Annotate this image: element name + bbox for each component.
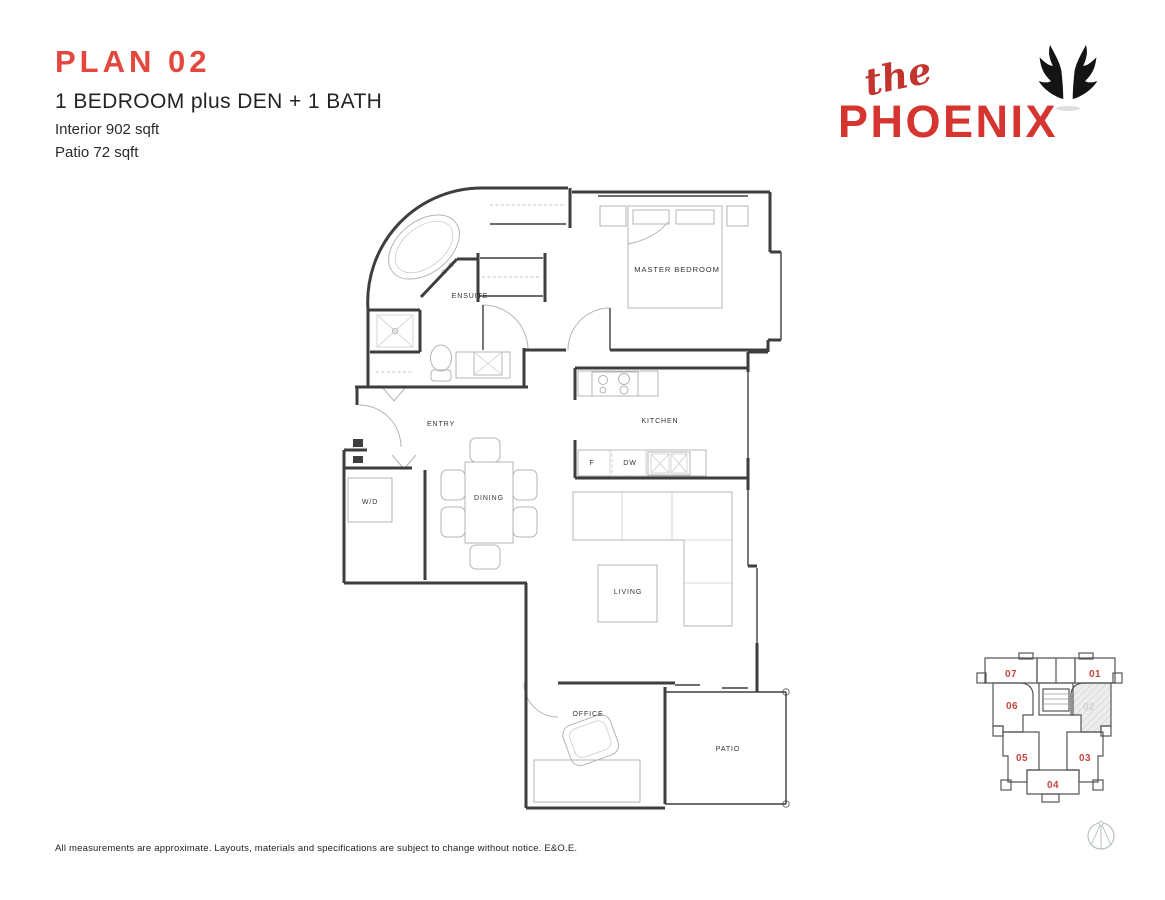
room-label-entry: ENTRY: [427, 421, 455, 428]
keyplan-unit-02: 02: [1083, 702, 1095, 713]
walls: [344, 188, 781, 808]
patio-area-text: Patio 72 sqft: [55, 144, 138, 161]
room-label-washer-dryer: W/D: [362, 499, 378, 506]
room-label-office: OFFICE: [572, 711, 603, 718]
room-label-living: LIVING: [614, 589, 642, 596]
shower: [377, 315, 413, 347]
vanity-sink: [456, 352, 510, 378]
label-dishwasher: DW: [623, 460, 636, 467]
room-label-kitchen: KITCHEN: [641, 418, 678, 425]
keyplan-unit-05: 05: [1016, 753, 1028, 764]
floorplan-brochure-page: PLAN 02 1 BEDROOM plus DEN + 1 BATH Inte…: [0, 0, 1165, 900]
office-desk: [534, 712, 640, 802]
room-label-master-bedroom: MASTER BEDROOM: [634, 265, 720, 274]
furniture-layer: [348, 202, 789, 807]
bathtub: [376, 202, 471, 292]
plan-subtitle: 1 BEDROOM plus DEN + 1 BATH: [55, 90, 382, 114]
dining-table: [441, 438, 537, 569]
floorplan-drawing: ENSUITE MASTER BEDROOM ENTRY KITCHEN F D…: [340, 170, 800, 830]
keyplan-unit-07: 07: [1005, 669, 1017, 680]
north-arrow-icon: [1083, 818, 1119, 854]
sofa: [573, 492, 732, 626]
room-label-ensuite: ENSUITE: [452, 293, 489, 300]
toilet: [431, 345, 452, 381]
keyplan-unit-06: 06: [1006, 701, 1018, 712]
phoenix-logo: the PHOENIX: [838, 38, 1118, 168]
building-key-plan: 07 01 06 02 05 03 04: [975, 652, 1139, 820]
plan-title: PLAN 02: [55, 44, 210, 80]
keyplan-unit-01: 01: [1089, 669, 1101, 680]
room-label-dining: DINING: [474, 495, 504, 502]
room-label-patio: PATIO: [716, 746, 740, 753]
disclaimer-text: All measurements are approximate. Layout…: [55, 843, 577, 854]
interior-area-text: Interior 902 sqft: [55, 121, 159, 138]
bed: [600, 206, 748, 308]
keyplan-unit-04: 04: [1047, 780, 1059, 791]
logo-name: PHOENIX: [838, 96, 1058, 148]
keyplan-unit-03: 03: [1079, 753, 1091, 764]
label-fridge: F: [589, 460, 594, 467]
